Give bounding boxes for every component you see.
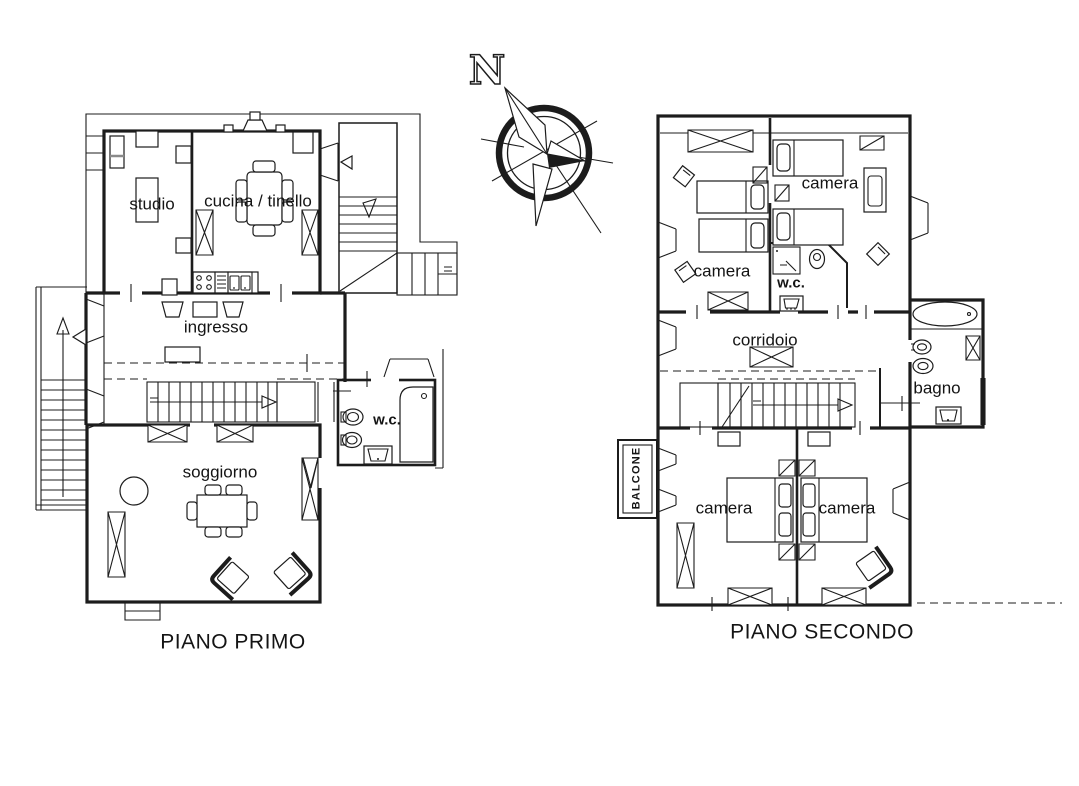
soggiorno-furniture — [108, 425, 318, 600]
stair-direction-arrow — [262, 396, 276, 408]
floor1-stairwell-top-right — [320, 123, 457, 295]
piano-primo-plan — [36, 112, 457, 620]
bidet — [913, 340, 931, 354]
desk — [864, 168, 886, 212]
bagno-fixtures — [880, 302, 985, 425]
toilet — [913, 359, 933, 374]
door-swing-arrow — [341, 156, 352, 169]
room-label-soggiorno: soggiorno — [183, 464, 258, 481]
balcone-structure — [618, 440, 676, 518]
room-label-balcone: BALCONE — [632, 447, 643, 510]
radiator-window — [302, 210, 318, 255]
floor2-stairs — [680, 383, 855, 427]
room-label-camera-nw: camera — [694, 263, 751, 280]
door-swing-arrow — [73, 329, 86, 345]
corridoio-radiator — [750, 347, 793, 367]
armchair — [270, 553, 312, 595]
floor2-title: PIANO SECONDO — [730, 622, 914, 643]
floor1-window-reveals — [86, 136, 104, 429]
room-label-corridoio: corridoio — [732, 332, 797, 349]
floor1-door-openings — [120, 289, 399, 488]
room-label-camera-ne: camera — [802, 175, 859, 192]
shower — [400, 387, 433, 462]
camera-nw-furniture — [673, 130, 789, 310]
floor1-door-ticks — [131, 284, 367, 391]
radiator-window — [196, 210, 213, 255]
floor-plan-sheet: N — [0, 0, 1079, 786]
room-label-ingresso: ingresso — [184, 319, 248, 336]
camera-sud-furniture — [677, 432, 893, 605]
room-label-wc-floor2: w.c. — [777, 276, 805, 291]
compass-north-label: N — [469, 47, 506, 94]
round-table — [120, 477, 148, 505]
armchair — [852, 547, 893, 588]
room-label-wc-floor1: w.c. — [373, 413, 401, 428]
armchair — [210, 557, 252, 599]
toilet — [810, 250, 825, 269]
room-label-bagno: bagno — [913, 380, 960, 397]
floor1-title: PIANO PRIMO — [160, 632, 306, 653]
room-label-studio: studio — [129, 196, 174, 213]
floor1-dashed-lines — [104, 363, 345, 379]
floor1-internal-stairs — [147, 382, 334, 422]
room-label-camera-se: camera — [819, 500, 876, 517]
room-label-camera-sw: camera — [696, 500, 753, 517]
room-label-cucina: cucina / tinello — [204, 193, 312, 210]
floor1-external-stairs-left — [36, 287, 87, 510]
kitchen-counter — [193, 272, 258, 293]
compass-rose: N — [469, 47, 613, 233]
dining-table — [197, 495, 247, 527]
